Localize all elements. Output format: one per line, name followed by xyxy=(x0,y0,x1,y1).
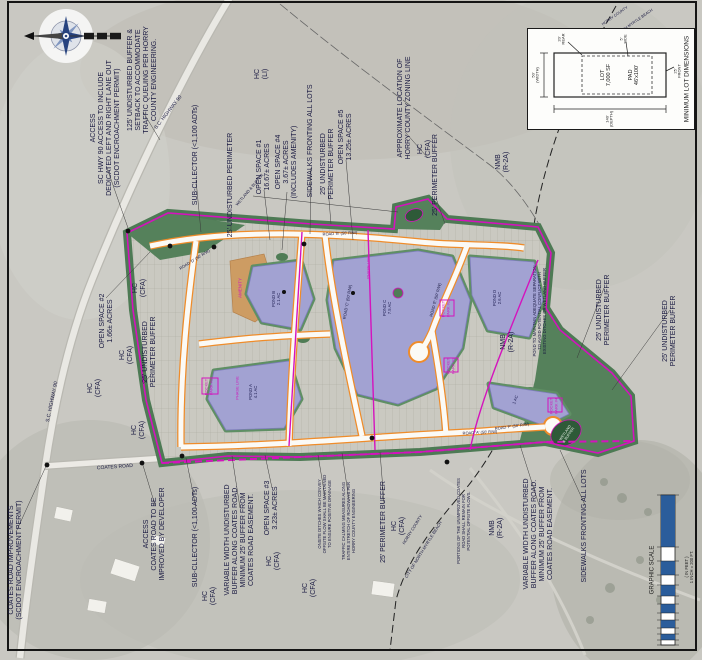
pad-outline xyxy=(582,56,652,94)
scale-units-label: ( IN FEET ) 1 INCH = 200 FT. xyxy=(684,551,694,583)
site-plan-sheet: ACCESS SC HWY 90 ACCESS TO INCLUDE DEDIC… xyxy=(0,0,702,660)
lot-width-dim: 50' (WIDTH) xyxy=(532,67,541,83)
front-setback-dim: 25' FRONT xyxy=(674,64,683,78)
pad-size-label: PAD 46'x100' xyxy=(628,65,640,85)
graphic-scale-label: GRAPHIC SCALE xyxy=(649,546,656,595)
side-setback-dim: 5' SIDE xyxy=(620,34,629,43)
graphic-scale: GRAPHIC SCALE ( IN FEET ) 1 INCH = 200 F… xyxy=(645,485,701,657)
lot-box-title: MINIMUM LOT DIMENSIONS xyxy=(683,36,690,123)
lot-size-label: LOT 7,000 SF xyxy=(600,64,612,86)
rear-setback-dim: 20' REAR xyxy=(558,33,567,44)
lot-depth-dim: 140' (DEPTH) xyxy=(606,111,615,127)
minimum-lot-dimensions-box: LOT 7,000 SF PAD 46'x100' 50' (WIDTH) 14… xyxy=(527,28,695,130)
